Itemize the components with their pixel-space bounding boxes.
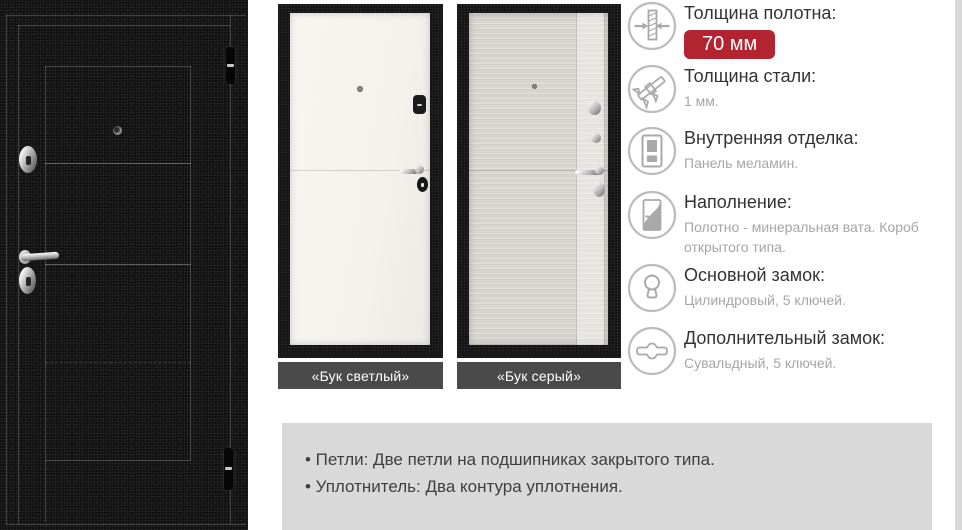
handle-knob [595,166,604,175]
spec-title: Дополнительный замок: [684,327,885,349]
note-sealant: • Уплотнитель: Два контура уплотнения. [305,473,912,500]
variant-label-light-beech: «Бук светлый» [278,362,443,389]
peephole [357,86,363,92]
door-handle-lever [21,252,59,262]
lock-knob [588,101,601,115]
spec-value: Панель меламин. [684,153,859,173]
spec-value-badge: 70 мм [684,30,775,59]
hinge-bottom [224,448,233,490]
panel-thickness-icon [627,1,677,51]
door-panel-line [45,163,191,164]
spec-title: Толщина полотна: [684,2,836,24]
variant-thumb-light-beech[interactable] [278,4,443,358]
spec-value: Сувальдный, 5 ключей. [684,353,885,373]
strip-edge-line [604,13,605,345]
peephole [532,84,537,89]
lock-cylinder-cover [19,267,36,294]
spec-title: Основной замок: [684,264,846,286]
lock-cylinder [417,177,428,192]
door-panel-line [45,460,191,461]
strip-edge-line [576,13,577,345]
door-frame-line [18,25,230,26]
spec-item-panel-thickness: Толщина полотна: 70 мм [627,1,836,59]
scrollbar-track[interactable] [955,0,962,530]
door-panel-line [45,264,191,265]
spec-item-interior-finish: Внутренняя отделка: Панель меламин. [627,126,859,176]
door-panel-light [290,13,430,345]
door-frame-line [6,524,246,525]
spec-value: Цилиндровый, 5 ключей. [684,290,846,310]
lock-cylinder-cover [19,146,37,173]
hardware-strip [577,13,604,345]
variant-thumb-gray-beech[interactable] [457,4,621,358]
extra-lock-icon [627,326,677,376]
spec-value: Полотно - минеральная вата. Короб открыт… [684,217,956,257]
spec-value: 1 мм. [684,91,816,111]
door-panel-line [45,362,191,363]
main-lock-icon [627,263,677,313]
main-door-photo[interactable] [0,0,248,530]
door-panel-line [190,66,191,460]
spec-item-main-lock: Основной замок: Цилиндровый, 5 ключей. [627,263,846,313]
spec-title: Толщина стали: [684,65,816,87]
lock-knob [591,133,601,143]
spec-title: Внутренняя отделка: [684,127,859,149]
variant-label-gray-beech: «Бук серый» [457,362,621,389]
lock-cylinder [593,182,605,197]
notes-panel: • Петли: Две петли на подшипниках закрыт… [282,423,932,530]
door-frame-line [6,15,7,524]
handle-knob [415,165,424,174]
spec-item-filling: Наполнение: Полотно - минеральная вата. … [627,190,956,257]
door-panel-line [45,66,191,67]
product-page: «Бук светлый» «Бук серый» Толщина полотн… [0,0,962,530]
note-hinges: • Петли: Две петли на подшипниках закрыт… [305,446,912,473]
door-filling-icon [627,190,677,240]
interior-finish-icon [627,126,677,176]
peephole [113,126,122,135]
spec-item-steel-thickness: Толщина стали: 1 мм. [627,64,816,114]
door-frame-line [6,15,246,16]
spec-title: Наполнение: [684,191,956,213]
spec-item-extra-lock: Дополнительный замок: Сувальдный, 5 ключ… [627,326,885,376]
caliper-icon [627,64,677,114]
door-panel-line [45,66,46,522]
hinge-top [226,47,235,84]
lock-cover [413,95,426,114]
